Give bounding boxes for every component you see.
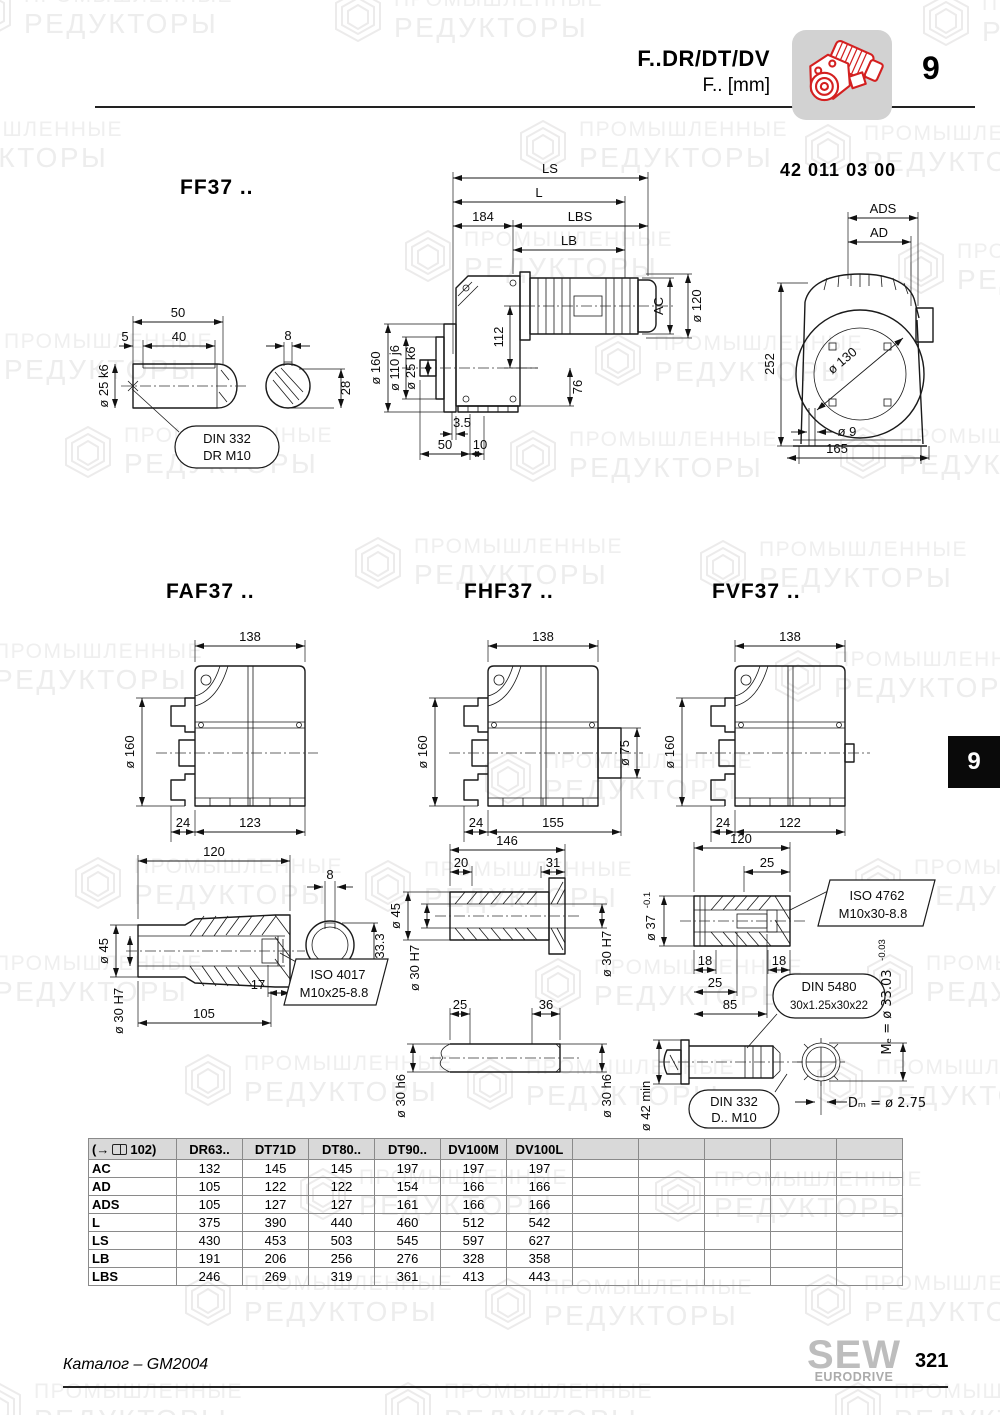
svg-text:20: 20 <box>454 855 468 870</box>
svg-text:ø 160: ø 160 <box>122 735 137 768</box>
svg-text:ø 75: ø 75 <box>617 740 632 766</box>
svg-text:LBS: LBS <box>568 209 593 224</box>
svg-text:24: 24 <box>469 815 483 830</box>
cell: 627 <box>507 1232 573 1250</box>
cell: 197 <box>375 1160 441 1178</box>
svg-text:3.5: 3.5 <box>453 415 471 430</box>
part-number: 42 011 03 00 <box>780 160 896 181</box>
svg-text:8: 8 <box>326 867 333 882</box>
fvf37-drawing: 138 ø 160 24 122 <box>640 614 885 859</box>
page-number: 321 <box>915 1350 948 1373</box>
svg-text:-0.03: -0.03 <box>877 939 888 961</box>
svg-text:30x1.25x30x22: 30x1.25x30x22 <box>790 1000 868 1012</box>
svg-text:ISO 4762: ISO 4762 <box>850 888 905 903</box>
col-header: DT90.. <box>375 1139 441 1160</box>
ff37-shaft-drawing: 50 5 40 ø 25 k6 8 28 <box>95 280 355 477</box>
svg-text:Mₑ = ø 33.03: Mₑ = ø 33.03 <box>880 969 895 1054</box>
cell: 127 <box>309 1196 375 1214</box>
cell: 197 <box>441 1160 507 1178</box>
page-title-unit: F.. [mm] <box>545 75 770 97</box>
svg-text:AC: AC <box>651 297 666 315</box>
cell: 122 <box>243 1178 309 1196</box>
svg-text:25: 25 <box>760 855 774 870</box>
table-ref-cell: (→ 102) <box>89 1139 177 1160</box>
footer-catalog-name: Каталог – GM2004 <box>63 1356 208 1374</box>
row-label: ADS <box>89 1196 177 1214</box>
svg-text:85: 85 <box>723 997 737 1012</box>
cell: 105 <box>177 1178 243 1196</box>
cell: 443 <box>507 1268 573 1286</box>
cell: 166 <box>441 1196 507 1214</box>
label-ff37: FF37 .. <box>180 176 254 200</box>
svg-text:DIN 5480: DIN 5480 <box>802 979 857 994</box>
row-label: LS <box>89 1232 177 1250</box>
svg-text:ø 45: ø 45 <box>388 903 403 929</box>
svg-text:D.. M10: D.. M10 <box>711 1110 757 1125</box>
faf37-drawing: 138 ø 160 24 123 <box>100 614 345 859</box>
table-row: LBS246269319361413443 <box>89 1268 903 1286</box>
svg-text:8: 8 <box>284 328 291 343</box>
svg-text:122: 122 <box>779 815 801 830</box>
cell: 460 <box>375 1214 441 1232</box>
col-header: DT80.. <box>309 1139 375 1160</box>
svg-text:DIN 332: DIN 332 <box>710 1094 758 1109</box>
chapter-number: 9 <box>922 50 940 87</box>
dimension-table: (→ 102) DR63.. DT71D DT80.. DT90.. DV100… <box>88 1138 903 1286</box>
svg-text:155: 155 <box>542 815 564 830</box>
col-header-empty <box>705 1139 771 1160</box>
svg-text:ø 25 k6: ø 25 k6 <box>96 364 111 407</box>
cell: 413 <box>441 1268 507 1286</box>
cell: 197 <box>507 1160 573 1178</box>
svg-text:252: 252 <box>762 353 777 375</box>
cell: 132 <box>177 1160 243 1178</box>
cell: 430 <box>177 1232 243 1250</box>
cell: 358 <box>507 1250 573 1268</box>
svg-text:112: 112 <box>491 327 506 348</box>
cell: 503 <box>309 1232 375 1250</box>
svg-text:DR M10: DR M10 <box>203 448 251 463</box>
svg-text:ø 30 H7: ø 30 H7 <box>111 988 126 1034</box>
svg-text:ø 160: ø 160 <box>415 735 430 768</box>
col-header: DT71D <box>243 1139 309 1160</box>
footer-rule <box>63 1386 948 1388</box>
svg-text:120: 120 <box>730 834 752 846</box>
svg-text:DIN 332: DIN 332 <box>203 431 251 446</box>
row-label: LBS <box>89 1268 177 1286</box>
svg-text:ø 37: ø 37 <box>643 915 658 941</box>
svg-text:18: 18 <box>698 953 712 968</box>
cell: 328 <box>441 1250 507 1268</box>
table-row: LS430453503545597627 <box>89 1232 903 1250</box>
cell: 319 <box>309 1268 375 1286</box>
cell: 145 <box>243 1160 309 1178</box>
svg-text:ISO 4017: ISO 4017 <box>311 967 366 982</box>
svg-text:36: 36 <box>539 997 553 1012</box>
gearmotor-icon <box>798 36 886 114</box>
cell: 166 <box>507 1178 573 1196</box>
svg-text:184: 184 <box>472 209 494 224</box>
svg-text:50: 50 <box>171 305 185 320</box>
svg-text:AD: AD <box>870 225 888 240</box>
svg-text:ø 42 min: ø 42 min <box>638 1081 653 1132</box>
col-header: DR63.. <box>177 1139 243 1160</box>
svg-text:ø 30 h6: ø 30 h6 <box>599 1074 614 1118</box>
cell: 154 <box>375 1178 441 1196</box>
svg-text:50: 50 <box>438 437 452 452</box>
row-label: AD <box>89 1178 177 1196</box>
ff37-front-drawing: ADS AD 252 ø 130 ø 9 <box>733 194 988 484</box>
svg-text:138: 138 <box>532 629 554 644</box>
svg-text:ø 25 k6: ø 25 k6 <box>403 346 418 389</box>
hollow-shaft-c-drawing: 120 25 ISO 4762 M10x30-8.8 ø 37 -0.1 18 … <box>625 834 950 1149</box>
table-row: ADS105127127161166166 <box>89 1196 903 1214</box>
svg-text:ø 30 H7: ø 30 H7 <box>599 931 614 977</box>
svg-text:165: 165 <box>826 441 848 456</box>
col-header-empty <box>639 1139 705 1160</box>
table-header-row: (→ 102) DR63.. DT71D DT80.. DT90.. DV100… <box>89 1139 903 1160</box>
hollow-shaft-a-drawing: 120 ø 45 ø 30 H7 8 33.3 <box>90 841 390 1058</box>
svg-text:ø 30 h6: ø 30 h6 <box>393 1074 408 1118</box>
col-header-empty <box>771 1139 837 1160</box>
logo-sew: SEW <box>795 1335 913 1375</box>
svg-text:ø 160: ø 160 <box>662 735 677 768</box>
page-title: F..DR/DT/DV F.. [mm] <box>545 46 770 97</box>
svg-text:ø 45: ø 45 <box>96 938 111 964</box>
svg-text:25: 25 <box>453 997 467 1012</box>
cell: 246 <box>177 1268 243 1286</box>
book-icon <box>112 1144 127 1155</box>
table-row: AC132145145197197197 <box>89 1160 903 1178</box>
ref-prefix: (→ <box>92 1142 109 1157</box>
cell: 161 <box>375 1196 441 1214</box>
page-title-model: F..DR/DT/DV <box>545 46 770 72</box>
svg-text:Dₘ = ø 2.75: Dₘ = ø 2.75 <box>848 1096 926 1111</box>
svg-text:ø 9: ø 9 <box>838 424 857 439</box>
label-fhf37: FHF37 .. <box>464 580 554 604</box>
cell: 191 <box>177 1250 243 1268</box>
cell: 122 <box>309 1178 375 1196</box>
svg-text:25: 25 <box>708 975 722 990</box>
cell: 440 <box>309 1214 375 1232</box>
col-header: DV100L <box>507 1139 573 1160</box>
svg-text:ø 110 j6: ø 110 j6 <box>387 345 402 391</box>
svg-text:M10x25-8.8: M10x25-8.8 <box>300 985 369 1000</box>
svg-text:LS: LS <box>542 161 558 176</box>
col-header-empty <box>573 1139 639 1160</box>
col-header-empty <box>837 1139 903 1160</box>
svg-text:123: 123 <box>239 815 261 830</box>
svg-text:-0.1: -0.1 <box>642 892 653 908</box>
svg-text:28: 28 <box>338 381 353 395</box>
svg-text:10: 10 <box>473 437 487 452</box>
svg-text:76: 76 <box>570 380 585 394</box>
label-fvf37: FVF37 .. <box>712 580 801 604</box>
gearmotor-icon-box <box>792 30 892 120</box>
svg-text:120: 120 <box>203 844 225 859</box>
row-label: L <box>89 1214 177 1232</box>
svg-text:LB: LB <box>561 233 577 248</box>
row-label: AC <box>89 1160 177 1178</box>
svg-text:ø 30 H7: ø 30 H7 <box>407 945 422 991</box>
cell: 453 <box>243 1232 309 1250</box>
cell: 206 <box>243 1250 309 1268</box>
cell: 361 <box>375 1268 441 1286</box>
cell: 512 <box>441 1214 507 1232</box>
svg-text:138: 138 <box>239 629 261 644</box>
label-faf37: FAF37 .. <box>166 580 255 604</box>
cell: 542 <box>507 1214 573 1232</box>
cell: 545 <box>375 1232 441 1250</box>
table-row: LB191206256276328358 <box>89 1250 903 1268</box>
svg-text:5: 5 <box>121 329 128 344</box>
cell: 127 <box>243 1196 309 1214</box>
sew-eurodrive-logo: SEW EURODRIVE <box>795 1335 913 1384</box>
svg-text:M10x30-8.8: M10x30-8.8 <box>839 906 908 921</box>
chapter-side-tab: 9 <box>948 736 1000 788</box>
svg-text:24: 24 <box>176 815 190 830</box>
cell: 145 <box>309 1160 375 1178</box>
table-row: AD105122122154166166 <box>89 1178 903 1196</box>
ref-suffix: 102) <box>130 1142 156 1157</box>
svg-text:ADS: ADS <box>870 201 897 216</box>
row-label: LB <box>89 1250 177 1268</box>
ff37-side-drawing: LS L 184 LBS LB <box>358 156 708 479</box>
svg-text:146: 146 <box>496 834 518 848</box>
cell: 276 <box>375 1250 441 1268</box>
col-header: DV100M <box>441 1139 507 1160</box>
svg-text:ø 120: ø 120 <box>689 289 704 322</box>
fhf37-drawing: 138 ø 160 ø 75 24 155 <box>393 614 655 859</box>
svg-text:31: 31 <box>546 855 560 870</box>
cell: 390 <box>243 1214 309 1232</box>
cell: 597 <box>441 1232 507 1250</box>
svg-text:ø 130: ø 130 <box>825 344 860 377</box>
svg-text:138: 138 <box>779 629 801 644</box>
svg-text:L: L <box>535 185 542 200</box>
cell: 269 <box>243 1268 309 1286</box>
cell: 375 <box>177 1214 243 1232</box>
svg-text:ø 160: ø 160 <box>368 351 383 384</box>
catalog-page: ПРОМЫШЛЕННЫЕРЕДУКТОРЫПРОМЫШЛЕННЫЕРЕДУКТО… <box>0 0 1000 1415</box>
table-row: L375390440460512542 <box>89 1214 903 1232</box>
cell: 166 <box>441 1178 507 1196</box>
cell: 256 <box>309 1250 375 1268</box>
hollow-shaft-b-drawing: 146 20 31 ø 45 ø 30 H7 ø 30 H7 25 36 <box>375 834 635 1144</box>
svg-text:105: 105 <box>193 1006 215 1021</box>
cell: 166 <box>507 1196 573 1214</box>
svg-text:40: 40 <box>172 329 186 344</box>
svg-text:17: 17 <box>251 977 265 992</box>
svg-text:18: 18 <box>772 953 786 968</box>
cell: 105 <box>177 1196 243 1214</box>
svg-text:24: 24 <box>716 815 730 830</box>
